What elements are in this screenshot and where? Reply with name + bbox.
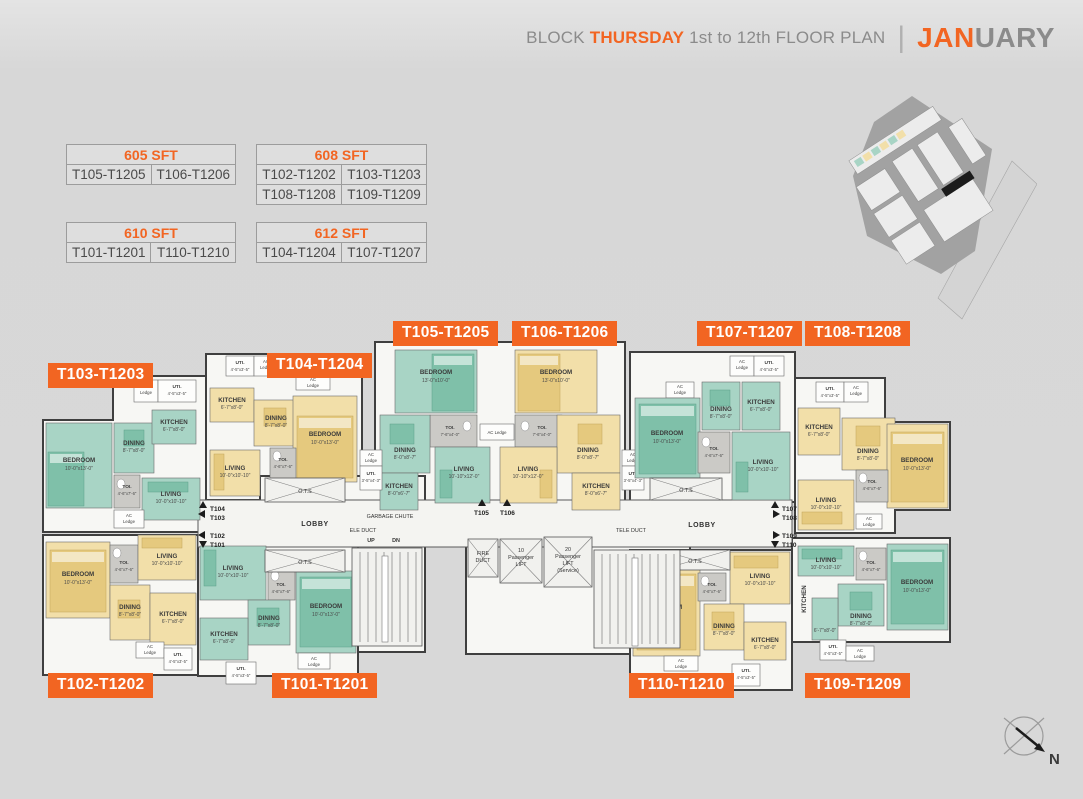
t107-toilet-dim: 4'-6"x7'-6" <box>705 453 724 458</box>
t103-toilet-label: TOI. <box>122 484 131 490</box>
t101-dining-dim: 8'-7"x8'-0" <box>258 623 281 629</box>
t108-uti-label: UTI. <box>825 386 834 392</box>
t104-ledge-label: Ledge <box>307 383 320 388</box>
t108-toilet-label: TOI. <box>867 479 876 485</box>
dining-table-icon <box>856 426 880 446</box>
entry-t108: T108 <box>782 515 797 522</box>
t107-uti-label: UTI. <box>764 360 773 366</box>
t107-kitchen-label: KITCHEN <box>747 399 775 406</box>
t104-uti-label: UTI. <box>235 360 244 366</box>
t103-living-dim: 10'-0"x10'-10" <box>156 499 187 505</box>
t104-toilet-label: TOI. <box>278 457 287 463</box>
t103-kitchen-dim: 6'-7"x8'-0" <box>163 427 186 433</box>
floor-plan-page: { "header": { "block_label": "BLOCK ", "… <box>0 0 1083 799</box>
t107-ac-label: AC <box>677 384 683 389</box>
area-cell: T104-T1204 <box>257 243 342 263</box>
area-table-title: 608 SFT <box>257 145 427 165</box>
entry-t110: T110 <box>782 542 797 549</box>
dining-table-icon <box>578 424 602 444</box>
t105-living-dim: 10'-10"x12'-0" <box>449 474 480 480</box>
t110-ac-label: AC <box>678 658 684 663</box>
t101-kitchen-label: KITCHEN <box>210 631 238 638</box>
t108-utility <box>816 382 844 402</box>
t109-toilet-label: TOI. <box>866 560 875 566</box>
t108-living-label: LIVING <box>816 497 837 504</box>
entry-t109: T109 <box>782 533 797 540</box>
dining-table-icon <box>710 390 730 406</box>
area-table-title: 610 SFT <box>67 223 236 243</box>
t105-uti-label: UTI. <box>366 471 375 477</box>
t107-dining-dim: 8'-7"x8'-0" <box>710 414 733 420</box>
t103-bedroom-dim: 10'-0"x13'-0" <box>65 466 93 472</box>
sofa-icon <box>802 512 842 524</box>
t107-utility <box>754 356 784 376</box>
t105-kitchen-dim: 8'-0"x6'-7" <box>388 491 411 497</box>
t104-kitchen-dim: 6'-7"x8'-0" <box>221 405 244 411</box>
t110-uti-label: UTI. <box>741 668 750 674</box>
t102-kitchen-label: KITCHEN <box>159 611 187 618</box>
area-cell: T110-T1210 <box>151 243 236 263</box>
t102-toilet-label: TOI. <box>119 560 128 566</box>
t106-toilet <box>515 415 562 447</box>
entry-t107: T107 <box>782 506 797 513</box>
badge-t109: T109-T1209 <box>805 673 910 698</box>
badge-t101: T101-T1201 <box>272 673 377 698</box>
t106-bedroom-dim: 13'-0"x10'-0" <box>542 378 570 384</box>
t104-bedroom-dim: 10'-0"x13'-0" <box>311 440 339 446</box>
t101-ledge-label: Ledge <box>308 662 321 667</box>
t103-ledge-label: Ledge <box>123 519 136 524</box>
t104-dining-dim: 8'-7"x8'-0" <box>265 423 288 429</box>
lift20-label3: LIFT <box>562 561 574 567</box>
t110-toilet-dim: 4'-6"x7'-6" <box>703 589 722 594</box>
t104-toilet-dim: 4'-6"x7'-6" <box>274 464 293 469</box>
t109-ac-label: AC <box>857 648 863 653</box>
area-cell: T103-T1203 <box>342 165 427 185</box>
t103-bedroom-label: BEDROOM <box>63 457 95 464</box>
t108-ledge-top-label: Ledge <box>850 391 863 396</box>
t103-ac-label: AC <box>126 513 132 518</box>
t102-ac-label: AC <box>147 644 153 649</box>
area-cell: T106-T1206 <box>151 165 236 185</box>
t105-ledge-label: Ledge <box>365 458 378 463</box>
t101-living-dim: 10'-0"x10'-10" <box>218 573 249 579</box>
t103-toilet-dim: 4'-6"x7'-6" <box>118 491 137 496</box>
badge-t103: T103-T1203 <box>48 363 153 388</box>
t109-ledge-label: Ledge <box>854 654 867 659</box>
lobby-label-left: LOBBY <box>301 521 329 528</box>
header-divider: | <box>897 25 905 51</box>
t102-dining-dim: 8'-7"x8'-0" <box>119 612 142 618</box>
t102-living-dim: 10'-0"x10'-10" <box>152 561 183 567</box>
t110-living-dim: 10'-0"x10'-10" <box>745 581 776 587</box>
t107-bedroom-dim: 10'-0"x13'-0" <box>653 439 681 445</box>
floor-text: 1st to 12th FLOOR PLAN <box>684 28 885 47</box>
t107-living-dim: 10'-0"x10'-10" <box>748 467 779 473</box>
badge-t110: T110-T1210 <box>629 673 734 698</box>
entry-t103: T103 <box>210 515 225 522</box>
area-cell: T102-T1202 <box>257 165 342 185</box>
block-name: THURSDAY <box>590 28 685 47</box>
floor-plan: BEDROOM 10'-0"x13'-0" DINING 8'-7"x8'-0"… <box>30 312 960 717</box>
area-cell: T108-T1208 <box>257 185 342 205</box>
dining-table-icon <box>850 592 872 610</box>
t103-living-label: LIVING <box>161 491 182 498</box>
t107-ac-top-label: AC <box>739 359 745 364</box>
toilet-icon <box>702 437 710 447</box>
sofa-icon <box>204 550 216 586</box>
area-cell: T107-T1207 <box>342 243 427 263</box>
t108-ac-label: AC <box>866 516 872 521</box>
entry-t105: T105 <box>474 510 489 517</box>
area-cell: T101-T1201 <box>67 243 151 263</box>
sofa-icon <box>734 556 778 568</box>
t109-utility <box>820 640 846 660</box>
toilet-icon <box>859 473 867 483</box>
fire-duct-label2: DUCT <box>476 558 492 564</box>
stairs-left <box>352 548 422 646</box>
t107-kitchen-dim: 6'-7"x8'-0" <box>750 407 773 413</box>
t108-kitchen-label: KITCHEN <box>805 424 833 431</box>
toilet-icon <box>521 421 529 431</box>
t105-toilet <box>430 415 477 447</box>
t105-bedroom-dim: 13'-0"x10'-0" <box>422 378 450 384</box>
t109-dining-label: DINING <box>850 613 872 620</box>
t110-uti-dim: 4'-5"x3'-5" <box>737 675 756 680</box>
entry-t106: T106 <box>500 510 515 517</box>
t108-bedroom-dim: 10'-0"x13'-0" <box>903 466 931 472</box>
t105-toilet-label: TOI. <box>445 425 454 431</box>
month-title: JANUARY <box>917 22 1055 54</box>
t106-living-label: LIVING <box>518 466 539 473</box>
sofa-icon <box>736 462 748 492</box>
stairs-right <box>594 550 680 648</box>
north-arrow-icon <box>1016 728 1038 746</box>
t108-living-dim: 10'-0"x10'-10" <box>811 505 842 511</box>
ots-label: O.T.S <box>298 560 312 566</box>
dn-label-left: DN <box>392 538 400 544</box>
badge-t106: T106-T1206 <box>512 321 617 346</box>
t106-dining-label: DINING <box>577 447 599 454</box>
entry-t104: T104 <box>210 506 225 513</box>
t105-ac-label: AC <box>368 452 374 457</box>
header-title: BLOCK THURSDAY 1st to 12th FLOOR PLAN <box>526 28 885 48</box>
t104-living-label: LIVING <box>225 465 246 472</box>
t103-dining-dim: 8'-7"x8'-0" <box>123 448 146 454</box>
lift10-label2: Passenger <box>508 555 534 561</box>
t109-toilet-dim: 4'-6"x7'-6" <box>862 567 881 572</box>
badge-t108: T108-T1208 <box>805 321 910 346</box>
t101-dining-label: DINING <box>258 615 280 622</box>
sofa-icon <box>142 538 182 548</box>
t109-living-label: LIVING <box>816 557 837 564</box>
t109-uti-dim: 4'-5"x3'-5" <box>824 651 843 656</box>
t106-toilet-dim: 7'-6"x4'-0" <box>533 432 552 437</box>
dining-table-icon <box>390 424 414 444</box>
t105-dining-label: DINING <box>394 447 416 454</box>
t107-ledge-top-label: Ledge <box>736 365 749 370</box>
area-table-title: 612 SFT <box>257 223 427 243</box>
t110-toilet-label: TOI. <box>707 582 716 588</box>
t103-kitchen-label: KITCHEN <box>160 419 188 426</box>
lobby-label-right: LOBBY <box>688 522 716 529</box>
sofa-icon <box>214 454 224 490</box>
garbage-chute-label: GARBAGE CHUTE <box>367 514 414 520</box>
t101-toilet-label: TOI. <box>276 582 285 588</box>
t109-kitchen-dim: 6'-7"x8'-0" <box>814 628 837 634</box>
t104-utility <box>226 356 254 376</box>
t102-uti-dim: 4'-5"x3'-5" <box>169 659 188 664</box>
area-table-612: 612 SFT T104-T1204 T107-T1207 <box>256 222 427 263</box>
area-table-605: 605 SFT T105-T1205 T106-T1206 <box>66 144 236 185</box>
t102-kitchen-dim: 6'-7"x8'-0" <box>162 619 185 625</box>
t104-kitchen-label: KITCHEN <box>218 397 246 404</box>
t101-bedroom-label: BEDROOM <box>310 603 342 610</box>
fire-duct-label: FIRE <box>477 551 490 557</box>
lift20-label4: (Service) <box>557 568 579 574</box>
area-table-610: 610 SFT T101-T1201 T110-T1210 <box>66 222 236 263</box>
lift20-label2: Passenger <box>555 554 581 560</box>
lift10-label3: LIFT <box>515 562 527 568</box>
month-rest: UARY <box>975 22 1055 53</box>
unit-t109: LIVING 10'-0"x10'-10" TOI. 4'-6"x7'-6" B… <box>798 544 948 661</box>
north-label: N <box>1049 751 1060 768</box>
t102-uti-label: UTI. <box>173 652 182 658</box>
t110-kitchen-label: KITCHEN <box>751 637 779 644</box>
t102-bedroom-label: BEDROOM <box>62 571 94 578</box>
t110-kitchen-dim: 6'-7"x8'-0" <box>754 645 777 651</box>
area-cell: T105-T1205 <box>67 165 152 185</box>
t101-uti-label: UTI. <box>236 666 245 672</box>
t108-kitchen-dim: 6'-7"x8'-0" <box>808 432 831 438</box>
area-table-608: 608 SFT T102-T1202 T103-T1203 T108-T1208… <box>256 144 427 205</box>
t109-bedroom-dim: 10'-0"x13'-0" <box>903 588 931 594</box>
ots-label: O.T.S <box>679 488 693 494</box>
t101-ac-label: AC <box>311 656 317 661</box>
t108-dining-label: DINING <box>857 448 879 455</box>
t106-kitchen-label: KITCHEN <box>582 483 610 490</box>
t108-toilet-dim: 4'-6"x7'-6" <box>863 486 882 491</box>
t107-uti-dim: 4'-5"x3'-5" <box>760 367 779 372</box>
t103-uti-label: UTI. <box>172 384 181 390</box>
t109-uti-label: UTI. <box>828 644 837 650</box>
t101-living-label: LIVING <box>223 565 244 572</box>
badge-t102: T102-T1202 <box>48 673 153 698</box>
t101-uti-dim: 4'-5"x3'-5" <box>232 673 251 678</box>
compass: N <box>992 706 1072 789</box>
lift10-label: 10 <box>518 548 524 554</box>
t105-kitchen-label: KITCHEN <box>385 483 413 490</box>
lift20-label: 20 <box>565 547 571 553</box>
t105-toilet-dim: 7'-6"x4'-0" <box>441 432 460 437</box>
t102-ledge-label: Ledge <box>144 650 157 655</box>
t106-bedroom-label: BEDROOM <box>540 369 572 376</box>
t103-dining-label: DINING <box>123 440 145 447</box>
toilet-icon <box>271 571 279 581</box>
t108-dining-dim: 8'-7"x8'-0" <box>857 456 880 462</box>
t109-bedroom-label: BEDROOM <box>901 579 933 586</box>
tele-duct-label: TELE DUCT <box>616 528 647 534</box>
t103-uti-dim: 4'-5"x3'-5" <box>168 391 187 396</box>
t109-living-dim: 10'-0"x10'-10" <box>811 565 842 571</box>
t108-bedroom-label: BEDROOM <box>901 457 933 464</box>
site-key-map <box>842 86 1037 326</box>
t107-ledge-label: Ledge <box>674 390 687 395</box>
t106-kitchen-dim: 8'-0"x6'-7" <box>585 491 608 497</box>
badge-t104: T104-T1204 <box>267 353 372 378</box>
t101-bedroom-dim: 10'-0"x13'-0" <box>312 612 340 618</box>
t110-living-label: LIVING <box>750 573 771 580</box>
t102-dining-label: DINING <box>119 604 141 611</box>
t107-bedroom-label: BEDROOM <box>651 430 683 437</box>
toilet-icon <box>113 548 121 558</box>
ots-label: O.T.S <box>688 559 702 565</box>
header: BLOCK THURSDAY 1st to 12th FLOOR PLAN | … <box>526 22 1055 54</box>
t107-living-label: LIVING <box>753 459 774 466</box>
ele-duct-label: ELE DUCT <box>350 528 377 534</box>
t102-living-label: LIVING <box>157 553 178 560</box>
t105-uti-dim: 3'-5"x4'-3" <box>362 478 381 483</box>
t107-kitchen <box>742 382 780 430</box>
t109-dining-dim: 8'-7"x8'-0" <box>850 621 873 627</box>
t109-kitchen-label: KITCHEN <box>801 585 808 613</box>
t108-ac-top-label: AC <box>853 385 859 390</box>
t106-dining-dim: 8'-0"x8'-7" <box>577 455 600 461</box>
entry-t102: T102 <box>210 533 225 540</box>
t108-uti-dim: 4'-5"x3'-5" <box>821 393 840 398</box>
t105-bedroom-label: BEDROOM <box>420 369 452 376</box>
t110-ledge-label: Ledge <box>675 664 688 669</box>
t105-dining-dim: 8'-0"x8'-7" <box>394 455 417 461</box>
ots-label: O.T.S <box>298 489 312 495</box>
up-label-left: UP <box>367 538 375 544</box>
block-label: BLOCK <box>526 28 590 47</box>
t104-uti-dim: 4'-5"x3'-5" <box>231 367 250 372</box>
t110-dining-label: DINING <box>713 623 735 630</box>
t107-toilet-label: TOI. <box>709 446 718 452</box>
t104-dining-label: DINING <box>265 415 287 422</box>
t106-toilet-label: TOI. <box>537 425 546 431</box>
badge-t107: T107-T1207 <box>697 321 802 346</box>
t107-dining-label: DINING <box>710 406 732 413</box>
area-cell: T109-T1209 <box>342 185 427 205</box>
t102-bedroom-dim: 10'-0"x13'-0" <box>64 580 92 586</box>
toilet-icon <box>859 551 867 561</box>
t106-uti-dim: 3'-5"x4'-3" <box>624 478 643 483</box>
t110-dining-dim: 8'-7"x8'-0" <box>713 631 736 637</box>
t104-living-dim: 10'-0"x10'-10" <box>220 473 251 479</box>
month-accent: JAN <box>917 22 975 53</box>
toilet-icon <box>463 421 471 431</box>
t106-living-dim: 10'-10"x12'-0" <box>513 474 544 480</box>
center-ac-ledge-label: AC Ledge <box>487 430 507 435</box>
t108-ledge-label: Ledge <box>863 522 876 527</box>
entry-t101: T101 <box>210 542 225 549</box>
badge-t105: T105-T1205 <box>393 321 498 346</box>
t104-bedroom-label: BEDROOM <box>309 431 341 438</box>
t102-toilet-dim: 4'-6"x7'-6" <box>115 567 134 572</box>
t101-toilet-dim: 4'-6"x7'-6" <box>272 589 291 594</box>
t105-living-label: LIVING <box>454 466 475 473</box>
t101-kitchen-dim: 6'-7"x8'-0" <box>213 639 236 645</box>
area-table-title: 605 SFT <box>67 145 236 165</box>
t103-ledge-top-label: Ledge <box>140 390 153 395</box>
